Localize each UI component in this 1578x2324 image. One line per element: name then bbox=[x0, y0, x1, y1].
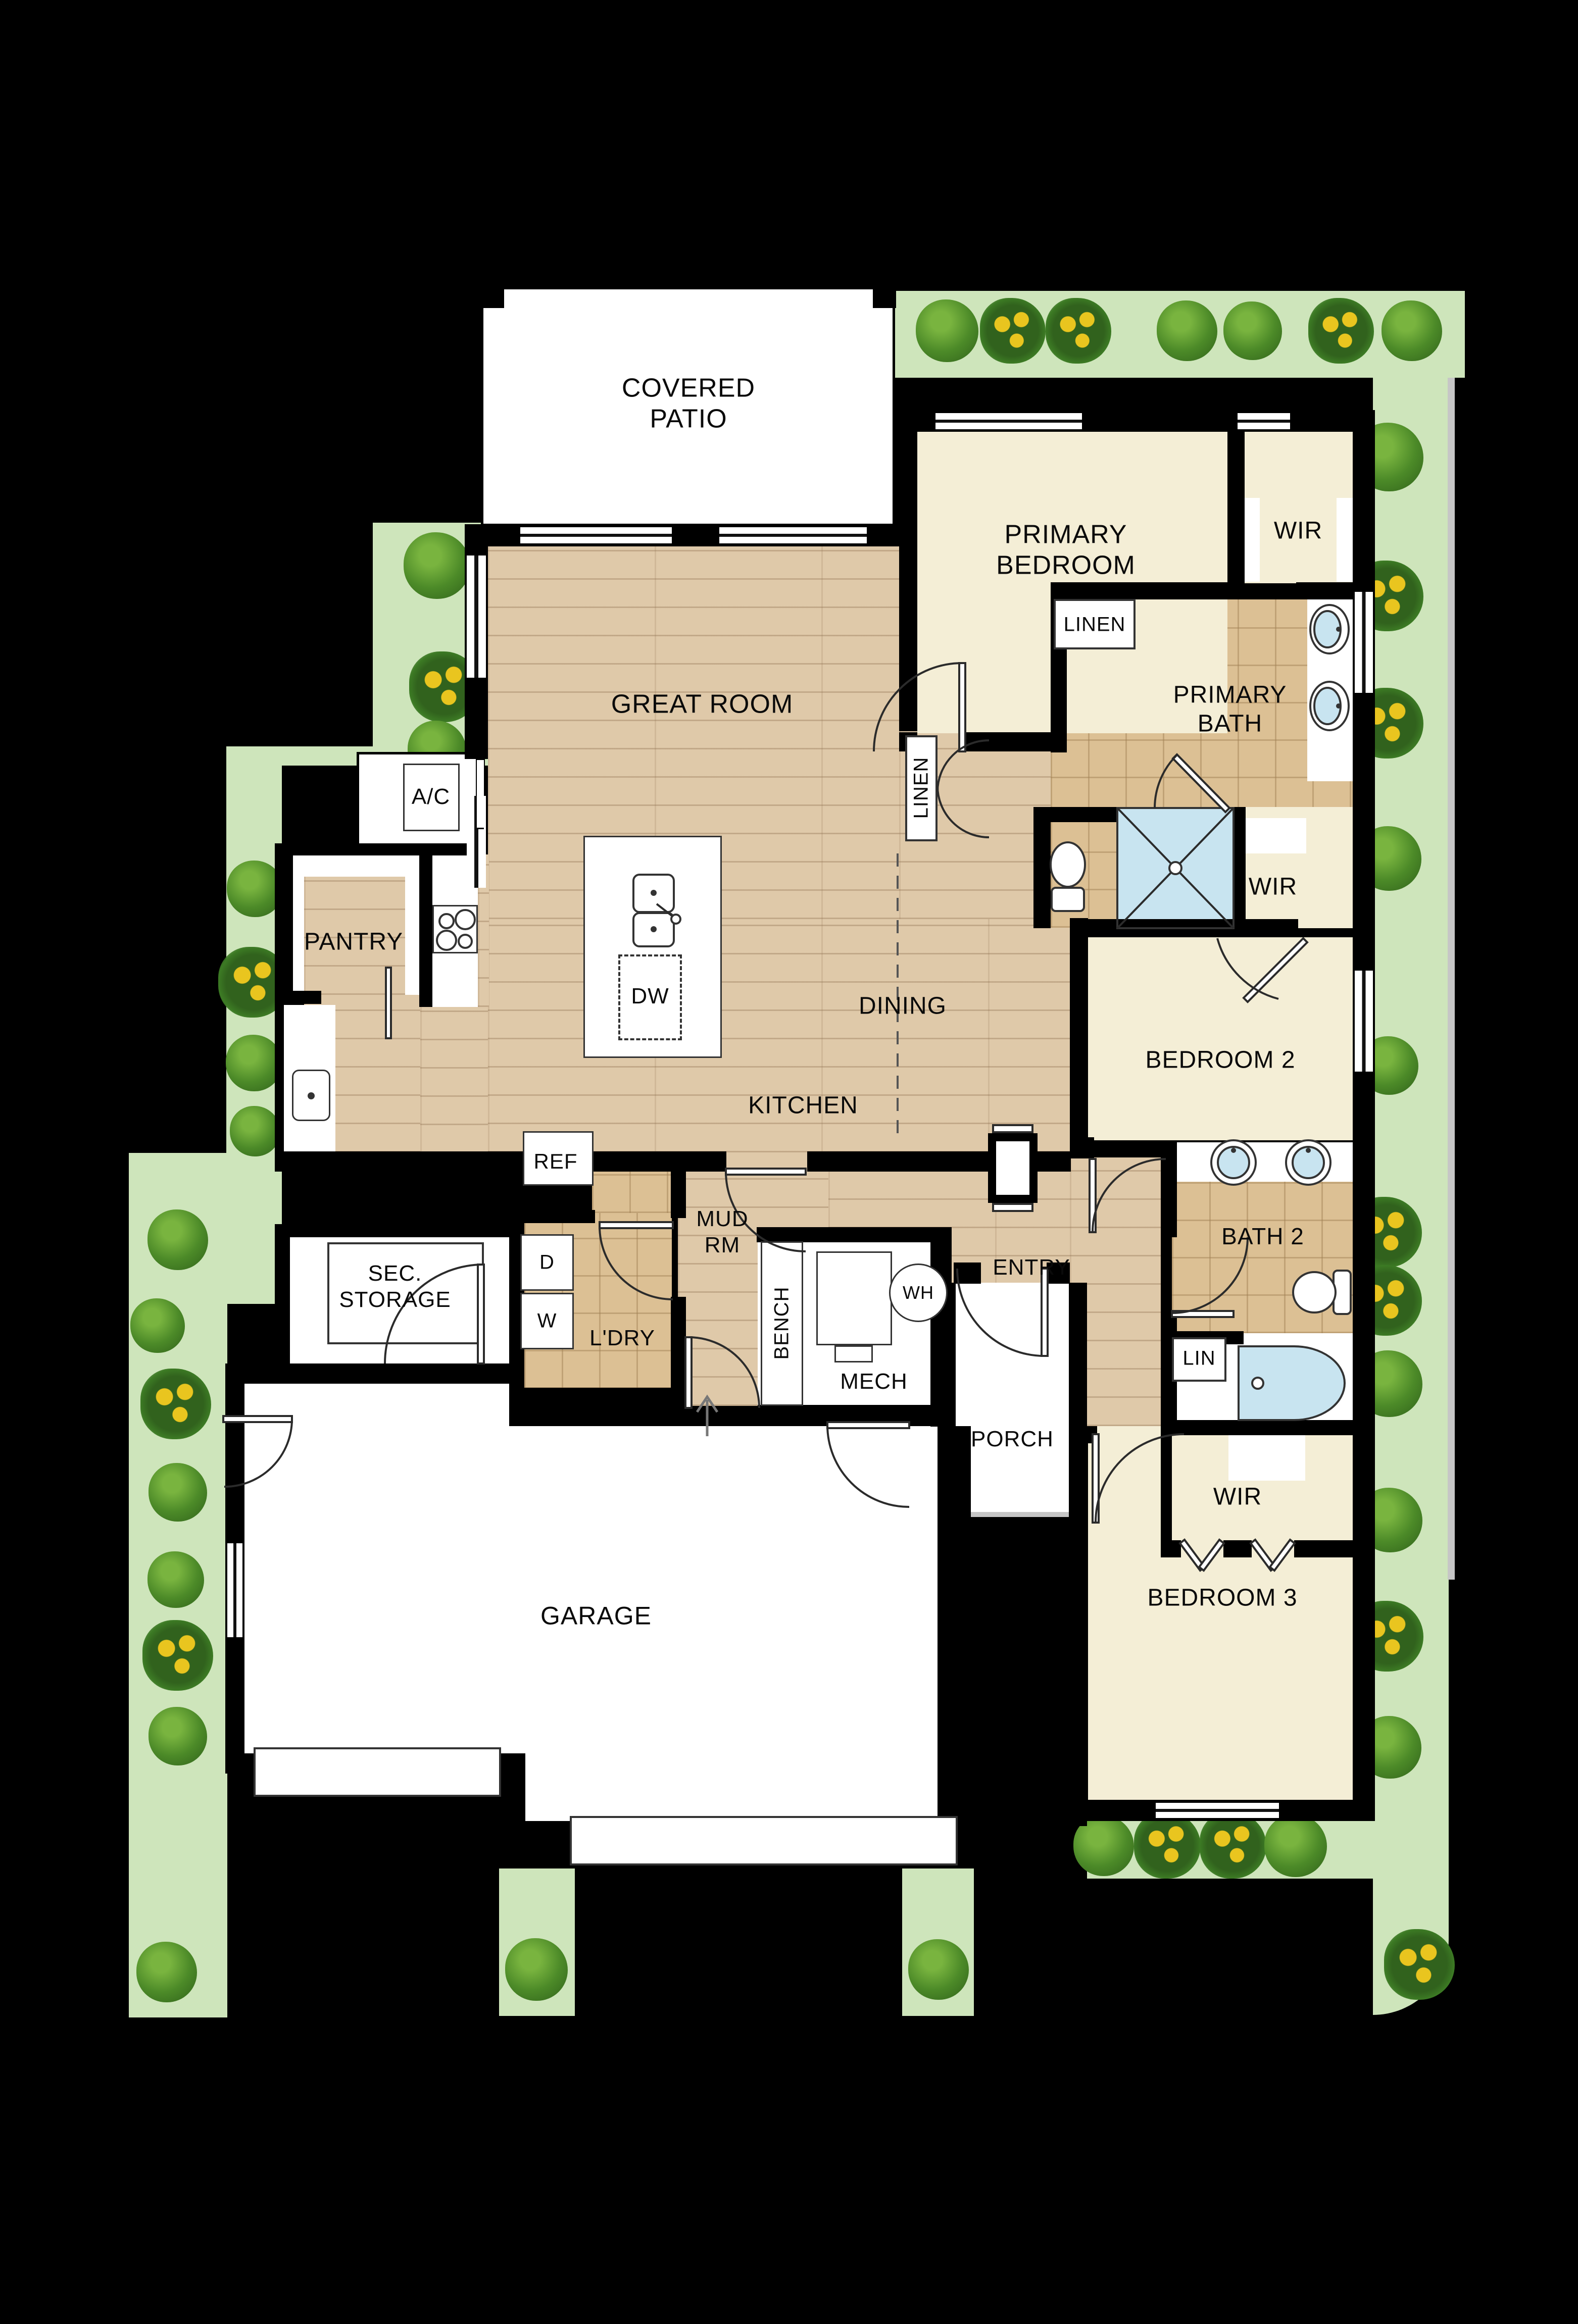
closet-door-mark bbox=[993, 1204, 1032, 1211]
room-label-entry: ENTRY bbox=[993, 1254, 1070, 1281]
door-leaf bbox=[223, 1416, 292, 1422]
faucet-icon bbox=[671, 915, 680, 924]
door-arc bbox=[1217, 938, 1278, 999]
door-leaf bbox=[959, 663, 965, 751]
door-leaf bbox=[1270, 1540, 1295, 1571]
door-leaf bbox=[478, 1265, 484, 1363]
door-leaf bbox=[600, 1222, 673, 1228]
room-label-bedroom2: BEDROOM 2 bbox=[1145, 1046, 1295, 1075]
closet-door-mark bbox=[993, 1125, 1032, 1132]
door-arc bbox=[224, 1419, 292, 1487]
door-leaf bbox=[726, 1169, 806, 1175]
burner-icon bbox=[439, 914, 454, 928]
room-label-dining: DINING bbox=[859, 992, 947, 1021]
room-label-sec-storage: SEC. STORAGE bbox=[319, 1260, 471, 1313]
label-bench: BENCH bbox=[770, 1286, 794, 1359]
burner-icon bbox=[437, 931, 456, 950]
door-arc bbox=[1096, 1434, 1184, 1523]
faucet-icon bbox=[1336, 627, 1341, 632]
door-leaf bbox=[1244, 938, 1307, 1002]
room-label-wir1: WIR bbox=[1274, 517, 1322, 546]
room-label-porch: PORCH bbox=[971, 1426, 1054, 1452]
room-label-great-room: GREAT ROOM bbox=[611, 689, 794, 720]
label-dryer: D bbox=[539, 1250, 555, 1274]
faucet-icon bbox=[1336, 703, 1341, 709]
label-wh: WH bbox=[903, 1282, 934, 1303]
door-leaf bbox=[685, 1337, 692, 1408]
burner-icon bbox=[456, 910, 475, 929]
label-washer: W bbox=[537, 1309, 557, 1333]
bottom-bar bbox=[622, 2103, 1419, 2128]
door-arc bbox=[957, 1269, 1045, 1356]
room-label-covered-patio: COVERED PATIO bbox=[598, 373, 779, 435]
door-arc bbox=[600, 1226, 673, 1299]
room-label-pantry: PANTRY bbox=[304, 928, 403, 957]
door-leaf bbox=[386, 968, 391, 1038]
room-label-primary-bath: PRIMARY BATH bbox=[1154, 681, 1306, 738]
room-label-ldry: L'DRY bbox=[589, 1325, 655, 1351]
sink-drain bbox=[308, 1092, 315, 1099]
room-label-linen-hall: LINEN bbox=[909, 757, 933, 819]
door-leaf bbox=[1042, 1269, 1048, 1356]
room-label-mud-rm: MUD RM bbox=[682, 1206, 763, 1258]
symbol-overlay bbox=[0, 0, 1578, 2324]
door-arc bbox=[688, 1337, 759, 1408]
bottom-rule bbox=[530, 2318, 1063, 2324]
toilet-icon bbox=[1052, 888, 1084, 911]
room-label-bedroom3: BEDROOM 3 bbox=[1147, 1584, 1297, 1613]
shower-drain bbox=[1169, 862, 1181, 874]
door-leaf bbox=[1199, 1540, 1224, 1571]
room-label-ac: A/C bbox=[412, 784, 450, 810]
floor-plan: COVERED PATIO GREAT ROOM PRIMARY BEDROOM… bbox=[0, 0, 1578, 2324]
sink-drain bbox=[651, 926, 657, 932]
faucet-icon bbox=[1231, 1148, 1236, 1153]
room-label-wir3: WIR bbox=[1213, 1483, 1262, 1512]
sink-drain bbox=[651, 890, 657, 896]
door-arc bbox=[1093, 1159, 1166, 1232]
door-arc bbox=[938, 740, 989, 792]
door-arc bbox=[827, 1425, 909, 1507]
door-arc bbox=[874, 663, 962, 751]
burner-icon bbox=[459, 935, 472, 948]
faucet-icon bbox=[1306, 1148, 1311, 1153]
door-leaf bbox=[1173, 754, 1229, 812]
tub-drain bbox=[1252, 1378, 1263, 1389]
label-lin: LIN bbox=[1182, 1346, 1215, 1370]
room-label-garage: GARAGE bbox=[540, 1601, 652, 1631]
room-label-wir2: WIR bbox=[1249, 873, 1297, 902]
room-label-mech: MECH bbox=[840, 1369, 908, 1395]
room-label-kitchen: KITCHEN bbox=[748, 1092, 858, 1121]
label-ref: REF bbox=[534, 1149, 578, 1174]
label-dw: DW bbox=[631, 983, 669, 1009]
room-label-bath2: BATH 2 bbox=[1221, 1223, 1304, 1250]
toilet-icon bbox=[1051, 842, 1085, 887]
door-arc bbox=[1155, 755, 1177, 808]
room-label-linen-bath: LINEN bbox=[1064, 613, 1126, 636]
entry-arrow-icon bbox=[697, 1397, 717, 1436]
door-arc bbox=[938, 786, 989, 837]
room-label-primary-bedroom: PRIMARY BEDROOM bbox=[957, 520, 1174, 582]
door-leaf bbox=[827, 1422, 909, 1428]
toilet-icon bbox=[1293, 1272, 1336, 1312]
